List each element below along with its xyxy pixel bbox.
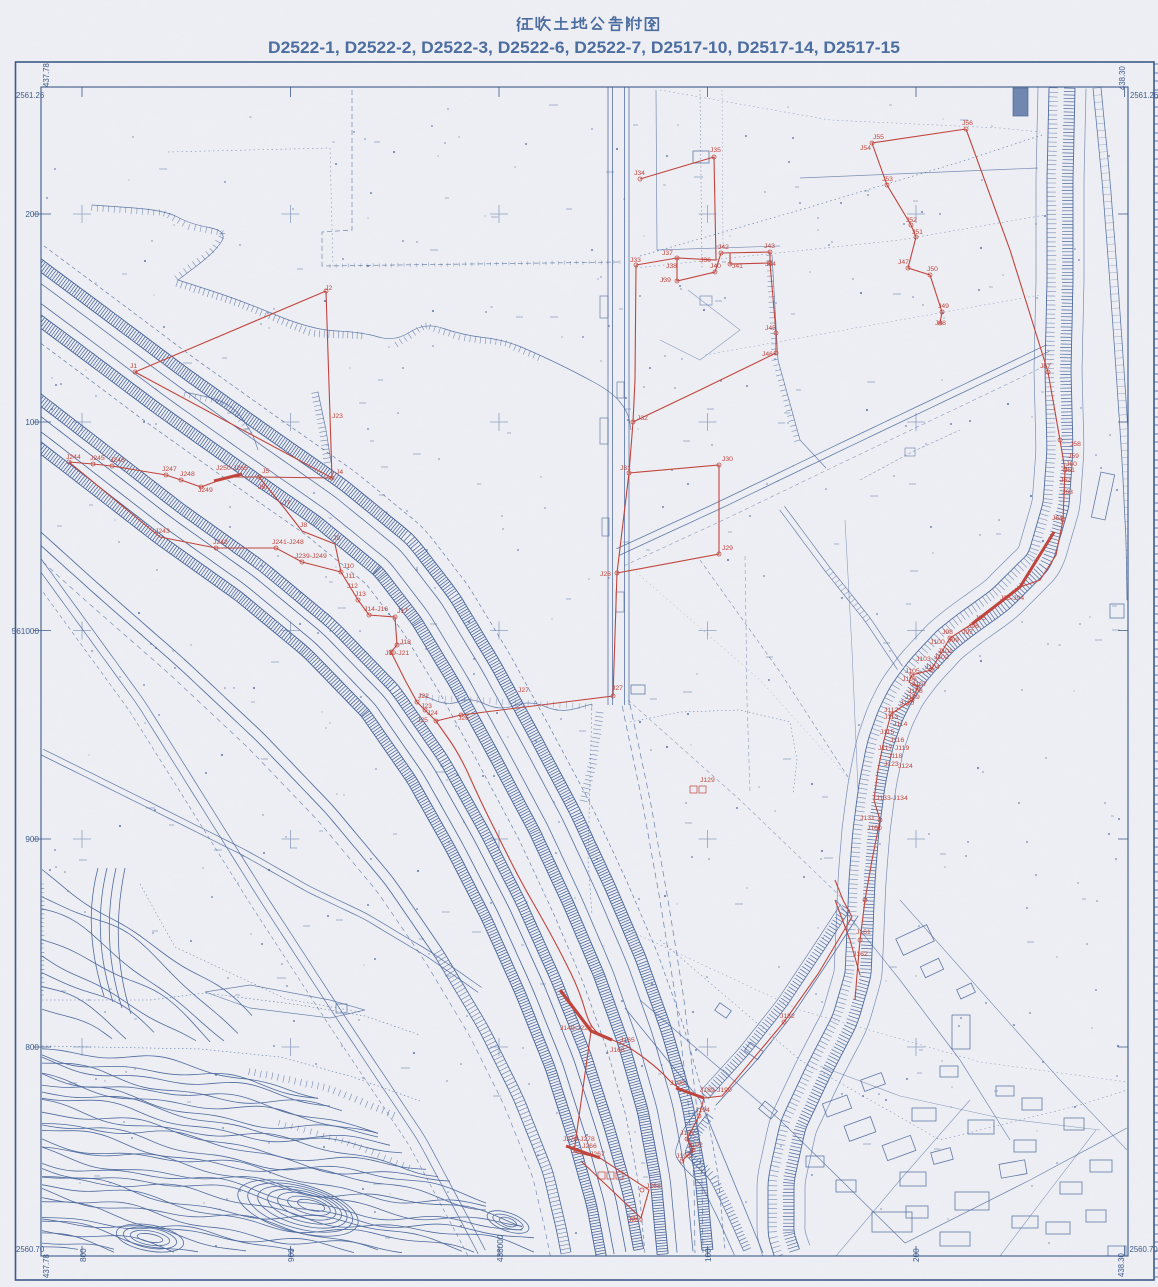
svg-text:100: 100 <box>25 418 39 427</box>
svg-text:J112: J112 <box>884 707 898 714</box>
svg-text:J41: J41 <box>732 263 743 270</box>
svg-text:J51: J51 <box>912 229 923 236</box>
svg-text:J32: J32 <box>637 415 648 422</box>
svg-text:J30: J30 <box>722 456 733 463</box>
svg-text:J6: J6 <box>258 484 265 491</box>
svg-text:J165: J165 <box>620 1037 635 1044</box>
svg-text:J19-J21: J19-J21 <box>385 650 409 657</box>
svg-text:J95: J95 <box>975 615 986 622</box>
svg-text:J14-J16: J14-J16 <box>364 606 388 613</box>
svg-text:J46: J46 <box>762 351 773 358</box>
svg-text:J23: J23 <box>421 703 432 710</box>
svg-text:J247: J247 <box>162 466 177 473</box>
svg-text:J61: J61 <box>1064 467 1075 474</box>
svg-text:J29: J29 <box>722 545 733 552</box>
svg-text:J1: J1 <box>130 363 137 370</box>
svg-text:D2522-1, D2522-2, D2522-3, D25: D2522-1, D2522-2, D2522-3, D2522-6, D252… <box>268 39 900 57</box>
svg-text:J250-J265: J250-J265 <box>216 465 248 472</box>
svg-text:J268: J268 <box>646 1183 661 1190</box>
svg-text:J12: J12 <box>347 583 358 590</box>
svg-text:J103: J103 <box>916 656 931 663</box>
svg-text:2560.70: 2560.70 <box>16 1245 45 1254</box>
svg-text:J124: J124 <box>898 763 913 770</box>
svg-text:J191: J191 <box>680 1130 695 1137</box>
svg-text:437.78: 437.78 <box>42 1254 51 1278</box>
svg-text:J196: J196 <box>670 1080 685 1087</box>
svg-text:800: 800 <box>25 1043 39 1052</box>
svg-text:J49: J49 <box>938 303 949 310</box>
svg-text:J194: J194 <box>695 1107 710 1114</box>
svg-text:J241-J248: J241-J248 <box>272 539 304 546</box>
svg-text:J54: J54 <box>860 145 871 152</box>
svg-text:J18: J18 <box>400 639 411 646</box>
svg-text:J17: J17 <box>397 608 408 615</box>
svg-text:J98: J98 <box>942 629 953 636</box>
svg-text:J266: J266 <box>582 1143 597 1150</box>
svg-text:J9: J9 <box>333 535 340 542</box>
svg-text:J55: J55 <box>873 134 884 141</box>
svg-text:J182: J182 <box>780 1013 795 1020</box>
svg-text:J116: J116 <box>890 737 904 744</box>
svg-text:J13: J13 <box>355 591 366 598</box>
svg-text:J31: J31 <box>620 465 631 472</box>
svg-text:200: 200 <box>25 210 39 219</box>
svg-text:J245: J245 <box>90 455 105 462</box>
svg-text:J11: J11 <box>345 573 356 580</box>
svg-text:J56: J56 <box>962 120 973 127</box>
svg-text:J113: J113 <box>884 714 898 721</box>
svg-text:J100: J100 <box>930 639 945 646</box>
svg-text:J242: J242 <box>213 539 228 546</box>
svg-text:J43: J43 <box>764 243 775 250</box>
svg-text:J7: J7 <box>283 500 290 507</box>
svg-text:J129: J129 <box>700 777 715 784</box>
svg-text:J35: J35 <box>710 147 721 154</box>
svg-text:J40: J40 <box>710 263 721 270</box>
svg-text:438.30: 438.30 <box>1118 65 1127 90</box>
svg-text:J117: J117 <box>878 745 892 752</box>
svg-text:J58: J58 <box>1070 441 1081 448</box>
svg-text:J119: J119 <box>895 745 909 752</box>
svg-text:J10: J10 <box>343 563 354 570</box>
svg-text:200: 200 <box>912 1248 921 1262</box>
svg-text:J104: J104 <box>925 664 940 671</box>
svg-text:437.78: 437.78 <box>42 63 51 87</box>
svg-text:2561.26: 2561.26 <box>16 91 44 100</box>
svg-text:J33: J33 <box>630 257 641 264</box>
svg-text:J62: J62 <box>1060 477 1071 484</box>
svg-text:J107: J107 <box>912 681 927 688</box>
svg-text:J25: J25 <box>417 717 428 724</box>
svg-text:J44: J44 <box>765 261 776 268</box>
svg-text:J45: J45 <box>765 325 776 332</box>
svg-text:2561.26: 2561.26 <box>1130 91 1158 100</box>
svg-text:J270-J278: J270-J278 <box>563 1136 595 1143</box>
svg-text:J47: J47 <box>898 259 909 266</box>
svg-text:J105: J105 <box>905 668 920 675</box>
svg-text:2560.70: 2560.70 <box>1130 1245 1158 1254</box>
svg-text:J27: J27 <box>518 687 529 694</box>
svg-text:J38: J38 <box>666 263 677 270</box>
svg-text:J24: J24 <box>427 710 438 717</box>
svg-text:J269: J269 <box>628 1217 643 1224</box>
svg-text:J160: J160 <box>867 825 882 832</box>
svg-text:J248: J248 <box>180 471 195 478</box>
svg-text:J115: J115 <box>880 729 894 736</box>
svg-text:J193: J193 <box>676 1153 691 1160</box>
svg-text:J37: J37 <box>662 250 673 257</box>
svg-text:J52: J52 <box>906 217 917 224</box>
svg-text:J34: J34 <box>634 170 645 177</box>
svg-text:J23: J23 <box>332 413 343 420</box>
svg-text:J168: J168 <box>610 1047 625 1054</box>
svg-text:J102: J102 <box>934 654 949 661</box>
svg-text:J22: J22 <box>418 693 429 700</box>
svg-text:J161: J161 <box>856 929 871 936</box>
svg-text:J50: J50 <box>927 266 938 273</box>
svg-text:J244: J244 <box>66 454 81 461</box>
svg-text:J249: J249 <box>198 487 213 494</box>
svg-text:J42: J42 <box>718 244 729 251</box>
svg-text:J5: J5 <box>262 468 269 475</box>
svg-text:J99: J99 <box>948 637 959 644</box>
svg-text:J48: J48 <box>935 320 946 327</box>
svg-text:J57: J57 <box>1040 363 1051 370</box>
svg-text:800: 800 <box>79 1248 88 1262</box>
svg-text:J4: J4 <box>336 469 343 476</box>
svg-text:J2: J2 <box>325 285 332 292</box>
svg-text:J97: J97 <box>962 629 973 636</box>
svg-text:J63: J63 <box>1062 489 1073 496</box>
svg-text:J243: J243 <box>155 528 170 535</box>
svg-text:J64: J64 <box>1052 515 1063 522</box>
svg-text:J123: J123 <box>884 761 899 768</box>
svg-text:J133-J134: J133-J134 <box>876 795 908 802</box>
svg-text:J110: J110 <box>900 700 914 707</box>
svg-text:J8: J8 <box>300 522 307 529</box>
svg-text:J267: J267 <box>590 1151 605 1158</box>
svg-text:J192: J192 <box>688 1142 703 1149</box>
svg-text:J114: J114 <box>893 721 907 728</box>
svg-text:J246: J246 <box>110 457 125 464</box>
svg-text:J118: J118 <box>888 753 902 760</box>
svg-text:J162: J162 <box>853 951 868 958</box>
svg-text:900: 900 <box>25 835 39 844</box>
svg-text:J131: J131 <box>860 815 875 822</box>
svg-text:J239-J249: J239-J249 <box>295 553 327 560</box>
svg-text:J59: J59 <box>1068 453 1079 460</box>
svg-text:J26: J26 <box>458 715 469 722</box>
svg-text:561000: 561000 <box>12 627 40 636</box>
svg-text:J53: J53 <box>882 176 893 183</box>
svg-text:J189-J190: J189-J190 <box>700 1087 732 1094</box>
svg-text:J39: J39 <box>660 277 671 284</box>
svg-text:J28: J28 <box>600 571 611 578</box>
svg-text:438.30: 438.30 <box>1117 1252 1126 1277</box>
svg-text:J149-J229: J149-J229 <box>560 1025 592 1032</box>
svg-text:J27: J27 <box>612 685 623 692</box>
svg-text:J65-J94: J65-J94 <box>1000 595 1024 602</box>
